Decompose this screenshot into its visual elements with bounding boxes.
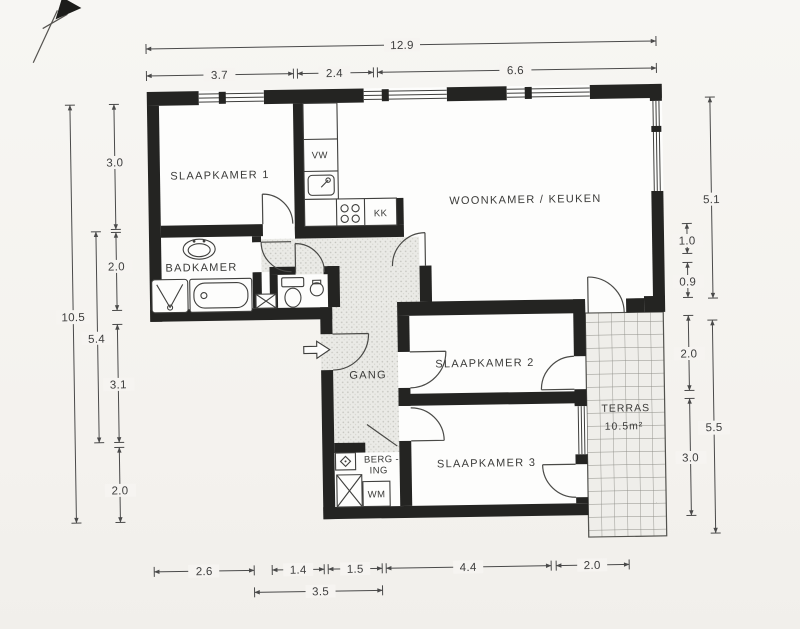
dim-top-c: 6.6 xyxy=(377,61,656,79)
dim-label: 3.5 xyxy=(312,586,329,598)
window-top-2 xyxy=(364,87,447,102)
room-label-badkamer: BADKAMER xyxy=(165,262,237,275)
room-label-terras: TERRAS xyxy=(601,402,650,415)
dim-label: 2.0 xyxy=(584,560,601,572)
dim-label: 1.0 xyxy=(679,235,696,247)
dim-bottom-mid: 3.5 xyxy=(254,584,382,600)
shaft xyxy=(256,294,276,308)
terras-area-label: 10.5m² xyxy=(605,420,644,433)
dim-label: 3.7 xyxy=(211,70,228,82)
dim-label: 4.4 xyxy=(460,562,477,574)
dim-left-total: 10.5 xyxy=(53,105,94,523)
dim-label: 1.4 xyxy=(290,564,307,576)
north-arrow-icon xyxy=(32,0,82,63)
dim-left-d: 2.0 xyxy=(104,447,136,522)
dim-top-b: 2.4 xyxy=(297,66,373,81)
room-label-slaapkamer-2: SLAAPKAMER 2 xyxy=(435,357,535,371)
dim-right-c: 0.9 xyxy=(672,262,704,297)
bathtub xyxy=(190,278,253,312)
dim-label: 1.5 xyxy=(347,564,364,576)
room-label-slaapkamer-1: SLAAPKAMER 1 xyxy=(170,169,270,183)
dim-left-a: 3.0 xyxy=(99,104,132,229)
dim-label: 0.9 xyxy=(679,276,696,288)
dim-label: 5.1 xyxy=(703,194,720,206)
dim-right-e: 3.0 xyxy=(675,398,708,515)
dim-label: 2.4 xyxy=(326,68,343,80)
room-label-slaapkamer-3: SLAAPKAMER 3 xyxy=(437,457,537,471)
floor-plan-page: SLAAPKAMER 1 BADKAMER WOONKAMER / KEUKEN… xyxy=(0,0,800,629)
shower xyxy=(152,279,189,313)
appliance-label-washer: WM xyxy=(368,489,386,500)
dim-right-d: 2.0 xyxy=(673,315,705,390)
room-label-berging-line2: ING xyxy=(370,465,388,476)
dim-right-a: 5.1 xyxy=(694,97,729,298)
ventilation-unit xyxy=(335,453,355,470)
dim-label: 12.9 xyxy=(390,40,414,52)
dim-bottom-a: 2.6 xyxy=(154,564,254,579)
floor-plan-drawing: SLAAPKAMER 1 BADKAMER WOONKAMER / KEUKEN… xyxy=(0,0,800,629)
dim-label: 3.1 xyxy=(110,379,127,391)
dim-label: 6.6 xyxy=(507,65,524,77)
closet-shaft xyxy=(337,475,362,507)
dim-top-a: 3.7 xyxy=(146,67,293,83)
washbasin xyxy=(183,239,215,260)
dim-left-b: 2.0 xyxy=(101,232,133,310)
dim-label: 5.4 xyxy=(88,334,105,346)
dim-label: 5.5 xyxy=(706,422,723,434)
dim-bottom-d: 4.4 xyxy=(386,559,551,575)
dim-label: 3.0 xyxy=(106,157,123,169)
dim-bottom-b: 1.4 xyxy=(272,563,324,577)
room-label-berging-line1: BERG - xyxy=(364,454,399,466)
dim-right-b: 1.0 xyxy=(672,223,703,253)
dim-label: 2.0 xyxy=(108,261,125,273)
window-right xyxy=(650,101,663,191)
dim-label: 3.0 xyxy=(682,452,699,464)
dim-label: 2.0 xyxy=(680,348,697,360)
room-label-gang: GANG xyxy=(349,369,387,382)
appliance-label-dishwasher: VW xyxy=(312,150,328,161)
dim-bottom-e: 2.0 xyxy=(556,558,629,573)
dim-bottom-c: 1.5 xyxy=(328,562,382,576)
window-slaapkamer3-terras xyxy=(575,406,588,454)
dim-label: 10.5 xyxy=(61,312,85,324)
appliance-label-fridge: KK xyxy=(374,208,388,219)
dim-top-total: 12.9 xyxy=(146,34,656,56)
dim-label: 2.6 xyxy=(196,566,213,578)
window-top-3 xyxy=(507,85,590,100)
room-label-woonkamer-keuken: WOONKAMER / KEUKEN xyxy=(449,193,602,207)
dim-label: 2.0 xyxy=(111,485,128,497)
window-top-1 xyxy=(199,90,264,105)
